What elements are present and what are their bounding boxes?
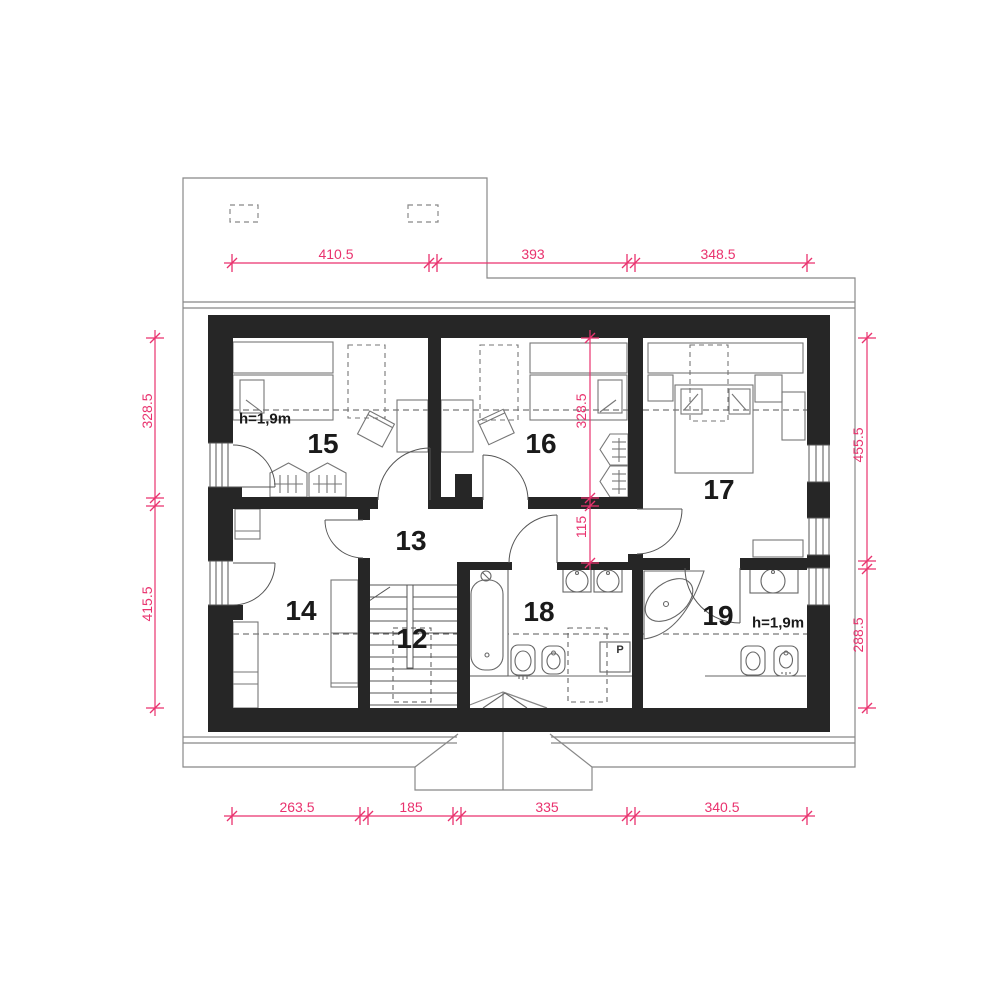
bidet xyxy=(774,646,798,676)
dim-middle-2: 115 xyxy=(573,516,589,538)
floor-plan-drawing xyxy=(0,0,1000,1000)
window-room17-a xyxy=(807,445,830,482)
balcony-door-room15 xyxy=(233,445,275,487)
dim-bottom-4: 340.5 xyxy=(704,799,739,815)
wardrobe-symbol xyxy=(600,434,628,465)
room-label-16: 16 xyxy=(525,428,556,460)
window-room17-b xyxy=(807,518,830,555)
door-room16 xyxy=(483,455,528,500)
door-room15 xyxy=(378,448,430,500)
balcony-glazing-room14 xyxy=(208,561,233,605)
chimney-pillar xyxy=(455,474,472,497)
dim-middle-1: 328.5 xyxy=(573,393,589,428)
door-room17 xyxy=(637,509,682,554)
room-17-furniture xyxy=(648,343,805,557)
windows xyxy=(208,443,830,605)
wall-hall-top-left xyxy=(233,497,378,509)
dim-top-1: 410.5 xyxy=(318,246,353,262)
room-label-15: 15 xyxy=(307,428,338,460)
toilet xyxy=(741,646,765,675)
wall-16-17 xyxy=(628,338,643,509)
washing-machine xyxy=(600,642,630,672)
dim-left-1: 328.5 xyxy=(139,393,155,428)
door-bathroom18 xyxy=(509,515,557,563)
height-note-room19: h=1,9m xyxy=(752,615,804,632)
window-room19 xyxy=(807,568,830,605)
floor-plan-page: 15 16 17 13 14 12 18 19 h=1,9m h=1,9m P … xyxy=(0,0,1000,1000)
room-label-17: 17 xyxy=(703,474,734,506)
room-label-19: 19 xyxy=(702,600,733,632)
chimney-dashed-1 xyxy=(230,205,258,222)
washing-machine-label: P xyxy=(616,644,623,656)
bidet xyxy=(542,646,565,674)
exterior-wall-right xyxy=(807,338,830,445)
dim-left-2: 415.5 xyxy=(139,586,155,621)
dim-top-3: 348.5 xyxy=(700,246,735,262)
dim-right-2: 288.5 xyxy=(850,617,866,652)
room-16-furniture xyxy=(441,343,628,497)
balcony-glazing-room15 xyxy=(208,443,233,487)
room-label-18: 18 xyxy=(523,596,554,628)
dim-bottom-2: 185 xyxy=(399,799,422,815)
height-note-room15: h=1,9m xyxy=(239,411,291,428)
exterior-wall-top xyxy=(208,315,830,338)
wardrobe-symbol xyxy=(600,466,628,497)
room-label-13: 13 xyxy=(395,525,426,557)
dim-right-1: 455.5 xyxy=(850,427,866,462)
wardrobe-symbol xyxy=(270,463,307,497)
door-room14 xyxy=(325,520,363,558)
dim-top-2: 393 xyxy=(521,246,544,262)
balcony-door-room14 xyxy=(233,563,275,605)
dormer-gable-triangle xyxy=(462,692,547,708)
corner-bathtub xyxy=(644,571,704,639)
wall-18-19 xyxy=(632,570,643,708)
chimney-dashed-2 xyxy=(408,205,438,222)
dim-bottom-3: 335 xyxy=(535,799,558,815)
exterior-wall-left xyxy=(208,338,233,443)
bathroom-18-fixtures xyxy=(466,569,632,708)
exterior-wall-bottom xyxy=(208,708,830,732)
room-label-14: 14 xyxy=(285,595,316,627)
wall-stairwell-left xyxy=(358,558,370,708)
wall-bath18-left xyxy=(457,562,470,708)
toilet xyxy=(511,645,535,680)
dim-bottom-1: 263.5 xyxy=(279,799,314,815)
room-label-12: 12 xyxy=(396,623,427,655)
wardrobe-symbol xyxy=(309,463,346,497)
